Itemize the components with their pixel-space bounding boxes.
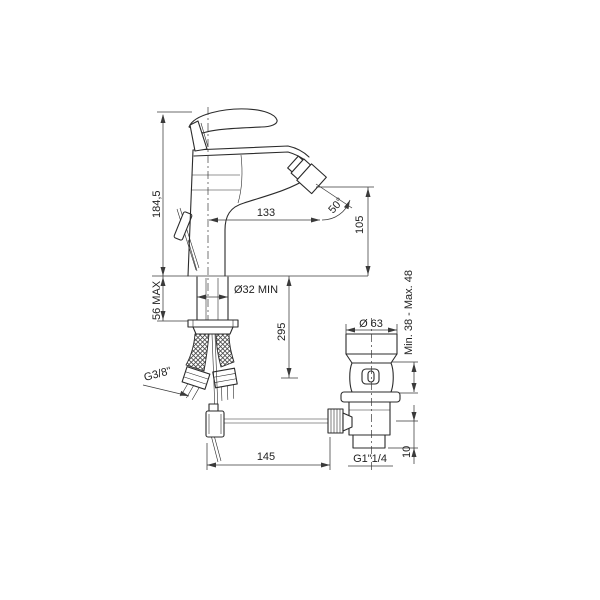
outlet-height-label: 105 xyxy=(354,216,366,234)
rod-length-label: 145 xyxy=(257,451,275,463)
waste-cap-diameter-label: Ø 63 xyxy=(359,318,383,330)
dim-deck-thickness: 56 MAX xyxy=(151,276,188,321)
mounting-shank xyxy=(188,277,238,334)
bidet-mixer-technical-drawing: 184,5 56 MAX Ø32 MIN 295 133 50° xyxy=(0,0,600,600)
handle-lever xyxy=(189,109,277,151)
dim-waste-cap-diameter: Ø 63 xyxy=(346,318,397,334)
waste-thread-label: G1"1/4 xyxy=(353,453,387,465)
aerator-outlet xyxy=(286,154,327,194)
dim-rod-length: 145 xyxy=(207,437,330,470)
supply-thread-label: G3/8" xyxy=(143,365,173,384)
supply-hoses xyxy=(178,334,240,411)
deck-thickness-label: 56 MAX xyxy=(151,280,163,320)
waste-tail-label: 10 xyxy=(401,446,413,458)
drain-assembly xyxy=(328,318,400,472)
dim-overall-height: 184,5 xyxy=(151,112,192,276)
waste-adjustment-label: Min. 38 - Max. 48 xyxy=(403,270,415,355)
overall-height-label: 184,5 xyxy=(151,190,163,218)
dim-hole-diameter: Ø32 MIN xyxy=(197,284,278,300)
spout-reach-label: 133 xyxy=(257,207,275,219)
dim-hose-length: 295 xyxy=(276,276,298,378)
dim-waste-adjustment: Min. 38 - Max. 48 xyxy=(392,270,418,393)
dim-waste-tail: 10 xyxy=(388,405,418,464)
hose-length-label: 295 xyxy=(276,323,288,341)
technical-drawing-page: 184,5 56 MAX Ø32 MIN 295 133 50° xyxy=(0,0,600,600)
spout-angle-label: 50° xyxy=(326,196,346,216)
pop-up-pull-rod xyxy=(174,208,199,271)
label-waste-thread: G1"1/4 xyxy=(348,453,393,466)
hose-fitting-left xyxy=(178,367,210,403)
dim-spout-angle: 50° xyxy=(316,184,352,220)
dim-spout-reach: 133 xyxy=(209,207,320,223)
dim-outlet-height: 105 xyxy=(316,187,374,276)
hole-diameter-label: Ø32 MIN xyxy=(234,284,278,296)
